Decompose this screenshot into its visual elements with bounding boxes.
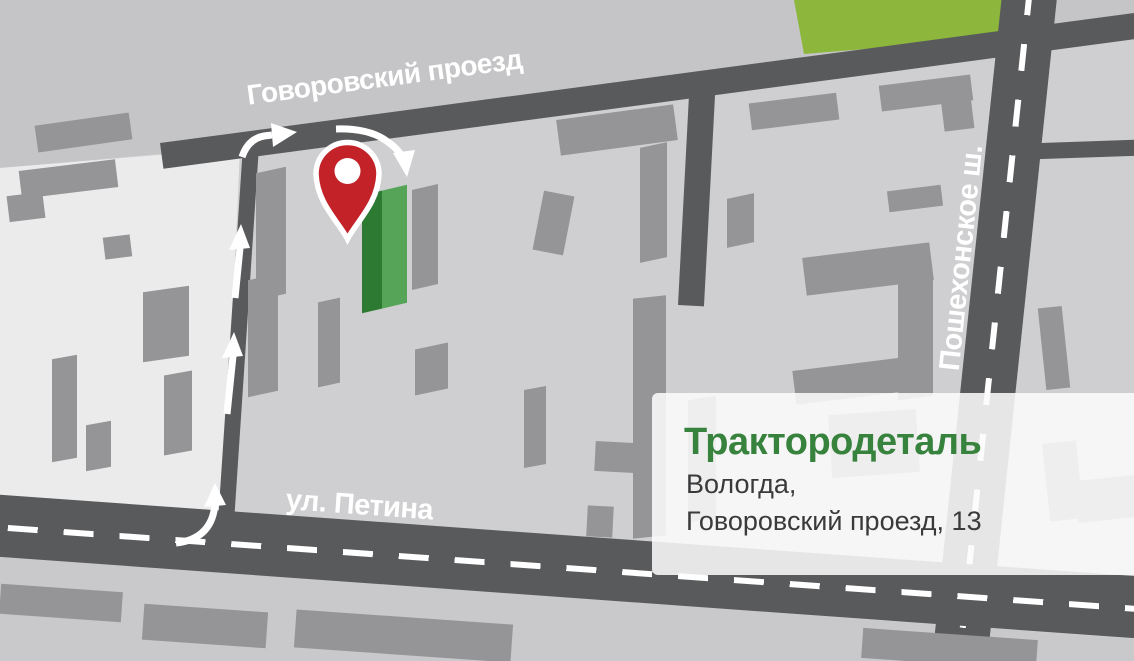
building [533, 191, 575, 256]
building [164, 371, 192, 456]
building [7, 192, 46, 222]
building [86, 421, 111, 471]
building [887, 185, 943, 212]
building [415, 342, 448, 395]
arrowhead-down-icon [393, 150, 415, 177]
building [103, 234, 132, 259]
building [1038, 306, 1070, 390]
building [52, 355, 77, 462]
building [749, 93, 840, 131]
info-card: Трактородеталь Вологда, Говоровский прое… [652, 393, 1134, 575]
address-city: Вологда, [686, 469, 796, 500]
road-deadend [678, 75, 716, 306]
highlighted-building-dark-half [362, 191, 382, 314]
building [318, 298, 340, 388]
building [594, 441, 636, 473]
building [640, 142, 667, 263]
building [412, 184, 438, 290]
address-street: Говоровский проезд, 13 [686, 506, 982, 537]
building [143, 286, 189, 362]
building [940, 86, 975, 131]
highlighted-building-light-half [382, 185, 407, 309]
highlighted-building [362, 185, 407, 313]
building [248, 274, 278, 397]
building [586, 505, 614, 537]
company-name: Трактородеталь [684, 421, 981, 464]
building [524, 386, 546, 468]
map-canvas: Говоровский проезд ул. Петина Пошехонско… [0, 0, 1134, 661]
building [727, 193, 754, 248]
